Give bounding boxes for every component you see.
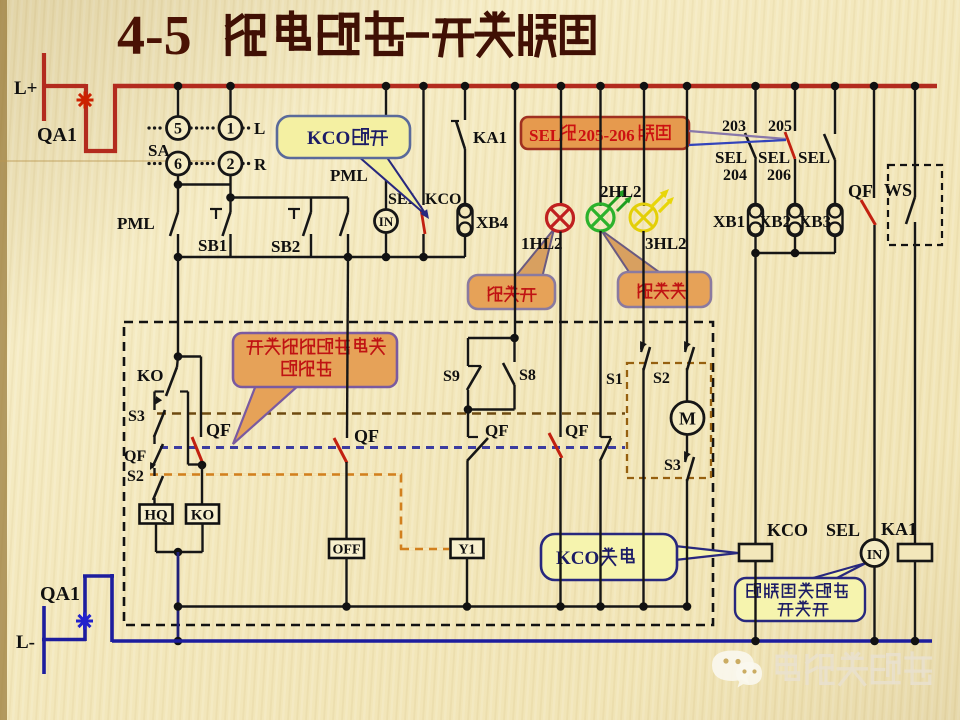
svg-text:KA1: KA1 xyxy=(473,128,507,147)
svg-text:KCO: KCO xyxy=(425,191,461,208)
svg-text:IN: IN xyxy=(867,548,883,563)
svg-text:204: 204 xyxy=(723,167,747,184)
svg-text:S3: S3 xyxy=(664,457,681,474)
svg-text:XB1: XB1 xyxy=(713,212,745,231)
svg-text:1: 1 xyxy=(227,121,235,138)
svg-text:KO: KO xyxy=(191,507,214,523)
svg-text:WS: WS xyxy=(884,180,912,200)
svg-text:SEL: SEL xyxy=(826,520,860,540)
svg-text:205: 205 xyxy=(768,118,792,135)
svg-text:SB2: SB2 xyxy=(271,237,300,256)
svg-text:4-5: 4-5 xyxy=(117,5,192,67)
svg-text:2HL2: 2HL2 xyxy=(600,182,642,201)
svg-text:KO: KO xyxy=(137,366,163,385)
svg-text:SEL: SEL xyxy=(529,126,561,145)
svg-text:KA1: KA1 xyxy=(881,519,917,539)
svg-text:L+: L+ xyxy=(14,78,38,99)
svg-text:SEL: SEL xyxy=(715,148,747,167)
svg-text:QA1: QA1 xyxy=(40,583,80,605)
svg-text:XB2: XB2 xyxy=(759,212,791,231)
svg-text:KCO: KCO xyxy=(767,520,808,540)
svg-text:2: 2 xyxy=(227,156,235,173)
svg-text:OFF: OFF xyxy=(333,543,361,558)
svg-text:S9: S9 xyxy=(443,368,460,385)
svg-text:R: R xyxy=(254,155,267,174)
svg-text:206: 206 xyxy=(767,167,791,184)
svg-text:XB3: XB3 xyxy=(799,212,831,231)
svg-text:M: M xyxy=(679,409,696,429)
svg-text:QA1: QA1 xyxy=(37,124,77,146)
svg-text:QF: QF xyxy=(848,181,873,201)
svg-text:QF: QF xyxy=(485,421,509,440)
svg-text:S3: S3 xyxy=(128,408,145,425)
svg-text:Y1: Y1 xyxy=(458,543,475,558)
svg-text:S2: S2 xyxy=(127,468,144,485)
svg-text:SEL: SEL xyxy=(798,148,830,167)
svg-text:QF: QF xyxy=(124,448,146,465)
svg-text:SEL: SEL xyxy=(758,148,790,167)
svg-text:S1: S1 xyxy=(606,371,623,388)
svg-text:KCO: KCO xyxy=(556,548,599,569)
svg-text:S2: S2 xyxy=(653,370,670,387)
svg-text:L-: L- xyxy=(16,632,35,653)
svg-text:QF: QF xyxy=(206,420,231,440)
svg-text:PML: PML xyxy=(330,166,368,185)
svg-text:HQ: HQ xyxy=(144,507,168,523)
svg-text:5: 5 xyxy=(174,121,182,138)
svg-text:1HL2: 1HL2 xyxy=(521,234,563,253)
svg-text:L: L xyxy=(254,119,265,138)
svg-text:IN: IN xyxy=(379,214,394,229)
svg-text:QF: QF xyxy=(565,421,589,440)
svg-text:SB1: SB1 xyxy=(198,236,227,255)
svg-text:6: 6 xyxy=(174,156,182,173)
svg-text:3HL2: 3HL2 xyxy=(645,234,687,253)
svg-text:SA: SA xyxy=(148,141,170,160)
svg-text:QF: QF xyxy=(354,426,379,446)
svg-text:PML: PML xyxy=(117,214,155,233)
svg-text:203: 203 xyxy=(722,118,746,135)
svg-text:XB4: XB4 xyxy=(476,213,509,232)
svg-text:KCO: KCO xyxy=(307,128,350,149)
svg-text:S8: S8 xyxy=(519,367,536,384)
svg-text:205-206: 205-206 xyxy=(578,126,635,145)
